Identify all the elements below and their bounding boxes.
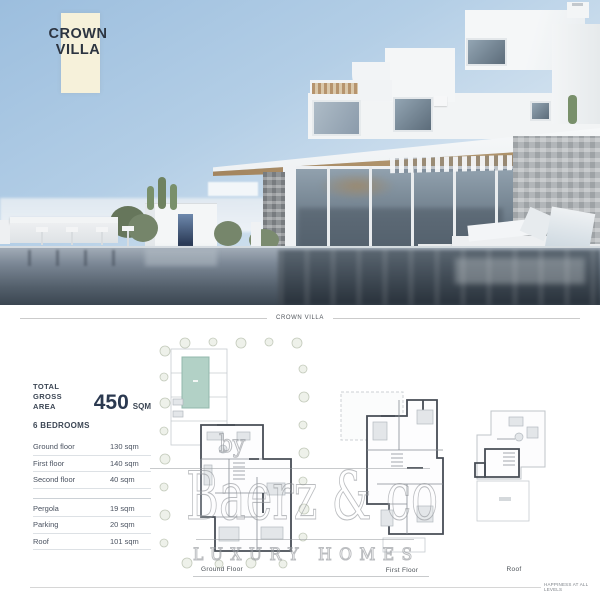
left-wall [0, 220, 10, 244]
pool-house-door [178, 214, 193, 248]
villa-mid-box [385, 48, 455, 102]
cactus-1 [147, 186, 154, 210]
ground-floor-plan [157, 337, 310, 569]
table-row: Roof 101 sqm [33, 534, 151, 551]
crown-villa-badge-text: CROWN VILLA [44, 27, 112, 58]
roof-lounge-1 [509, 417, 523, 426]
roof-table [515, 433, 523, 441]
pool-house-reflection [145, 248, 217, 266]
total-area-label: TOTAL GROSS AREA [33, 382, 87, 412]
cactus-3 [170, 184, 177, 210]
table-row: Second floor 40 sqm [33, 472, 151, 489]
bar-stool-3 [96, 227, 108, 245]
total-area-value: 450 [94, 394, 129, 412]
bed-1 [373, 422, 387, 440]
badge-line2: VILLA [44, 43, 112, 59]
row-label: First floor [33, 459, 110, 468]
first-floor-label: First Floor [374, 567, 430, 574]
pool-edge-highlight [0, 246, 600, 248]
upper-window [466, 38, 507, 66]
section-title: CROWN VILLA [276, 315, 324, 321]
footer-rule [30, 587, 541, 588]
bedrooms-label: 6 BEDROOMS [33, 421, 151, 430]
divider-line-right [333, 318, 580, 319]
sofa [207, 432, 223, 440]
badge-line1: CROWN [44, 27, 112, 43]
bed-ground [267, 483, 285, 495]
sofa-2 [237, 432, 250, 440]
villa-photo: CROWN VILLA [0, 0, 600, 305]
total-label-line1: TOTAL [33, 382, 87, 392]
row-value: 40 sqm [110, 475, 151, 484]
roof-lounge-2 [527, 427, 538, 438]
balcony-outline [383, 538, 425, 552]
distant-buildings [208, 182, 258, 196]
left-glass-band [312, 100, 361, 136]
row-label: Second floor [33, 475, 110, 484]
table-row: First floor 140 sqm [33, 456, 151, 473]
divider-line-left [20, 318, 267, 319]
row-label: Parking [33, 520, 110, 529]
cactus-2 [158, 177, 166, 209]
watermark-rule-mid [196, 539, 414, 540]
terrace-mark [499, 497, 511, 501]
table-row: Parking 20 sqm [33, 517, 151, 534]
stool-reflections [28, 250, 128, 266]
bed-2 [417, 410, 433, 424]
table-row: Pergola 19 sqm [33, 501, 151, 518]
plan-pool [182, 357, 209, 408]
watermark-rule-top [150, 468, 430, 469]
bar-stool-1 [36, 227, 48, 245]
row-value: 130 sqm [110, 442, 151, 451]
ground-floor-label: Ground Floor [192, 566, 252, 573]
roof-label: Roof [492, 566, 536, 573]
outdoor-kitchen [173, 399, 183, 405]
wall-fixture [434, 96, 447, 106]
outdoor-kitchen-2 [173, 411, 183, 417]
row-value: 101 sqm [110, 537, 151, 546]
row-value: 140 sqm [110, 459, 151, 468]
footer-tagline: HAPPINESS AT ALL LEVELS [544, 582, 600, 592]
area-info-panel: TOTAL GROSS AREA 450 SQM 6 BEDROOMS Grou… [33, 382, 151, 550]
roof-plan [467, 407, 549, 531]
mid-window [393, 97, 433, 132]
cactus-right [568, 95, 577, 124]
watermark-rule-bottom [193, 576, 429, 577]
small-window [530, 101, 551, 121]
total-label-line2: GROSS AREA [33, 392, 87, 412]
row-value: 19 sqm [110, 504, 151, 513]
section-divider: CROWN VILLA [20, 313, 580, 323]
row-label: Roof [33, 537, 110, 546]
table [219, 445, 227, 453]
bush-center [214, 221, 242, 246]
lounge-reflection [455, 258, 585, 284]
bar-stool-4 [122, 226, 134, 246]
brochure-page: CROWN VILLA CROWN VILLA TOTAL GROSS AREA… [0, 0, 600, 600]
bath [381, 510, 393, 526]
parking-mark [261, 527, 283, 539]
table-row: Ground floor 130 sqm [33, 439, 151, 456]
table-group-divider [33, 489, 151, 499]
total-area-row: TOTAL GROSS AREA 450 SQM [33, 382, 151, 412]
plan-pool-step [193, 380, 198, 382]
balcony-pergola-slats [312, 83, 358, 94]
bar-stool-2 [66, 227, 78, 245]
area-table: Ground floor 130 sqm First floor 140 sqm… [33, 439, 151, 550]
total-area-unit: SQM [133, 401, 151, 412]
row-label: Pergola [33, 504, 110, 513]
row-label: Ground floor [33, 442, 110, 451]
chimney-vent [572, 3, 583, 6]
bed-3 [417, 506, 433, 522]
row-value: 20 sqm [110, 520, 151, 529]
